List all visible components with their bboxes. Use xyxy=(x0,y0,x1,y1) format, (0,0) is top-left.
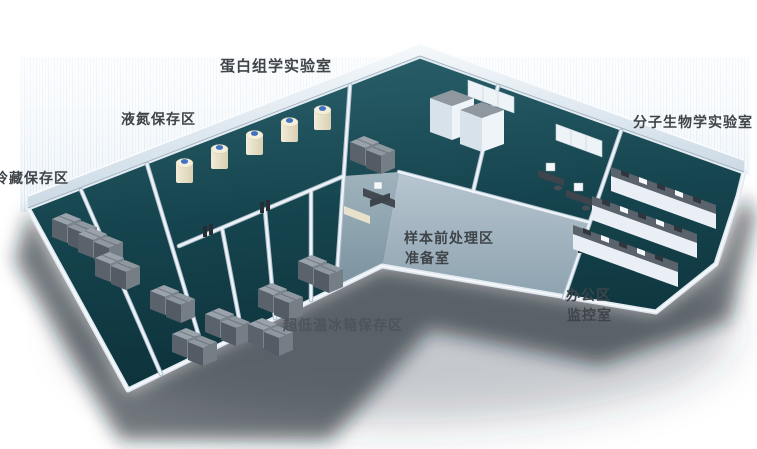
label-sample-pretreatment: 样本前处理区 xyxy=(404,232,494,246)
label-preparation-room: 准备室 xyxy=(405,252,450,266)
lab-floorplan-screenshot: 蛋白组学实验室 液氮保存区 冷藏保存区 分子生物学实验室 样本前处理区 准备室 … xyxy=(0,0,757,449)
nitrogen-tank xyxy=(176,159,193,184)
nitrogen-tank xyxy=(281,118,298,143)
label-ult-freezer-storage: 超低温冰箱保存区 xyxy=(283,319,403,333)
label-cold-storage: 冷藏保存区 xyxy=(0,172,69,186)
floorplan-render xyxy=(0,0,757,449)
nitrogen-tank xyxy=(246,131,263,156)
label-liquid-nitrogen-storage: 液氮保存区 xyxy=(121,113,196,127)
label-office-area: 办公区 xyxy=(566,289,611,303)
nitrogen-tank xyxy=(211,145,228,170)
label-monitoring-room: 监控室 xyxy=(567,309,612,323)
label-proteomics-lab: 蛋白组学实验室 xyxy=(220,59,332,74)
label-molecular-biology-lab: 分子生物学实验室 xyxy=(633,116,753,130)
proteomics-cabinet xyxy=(460,102,504,152)
nitrogen-tank xyxy=(314,106,331,131)
